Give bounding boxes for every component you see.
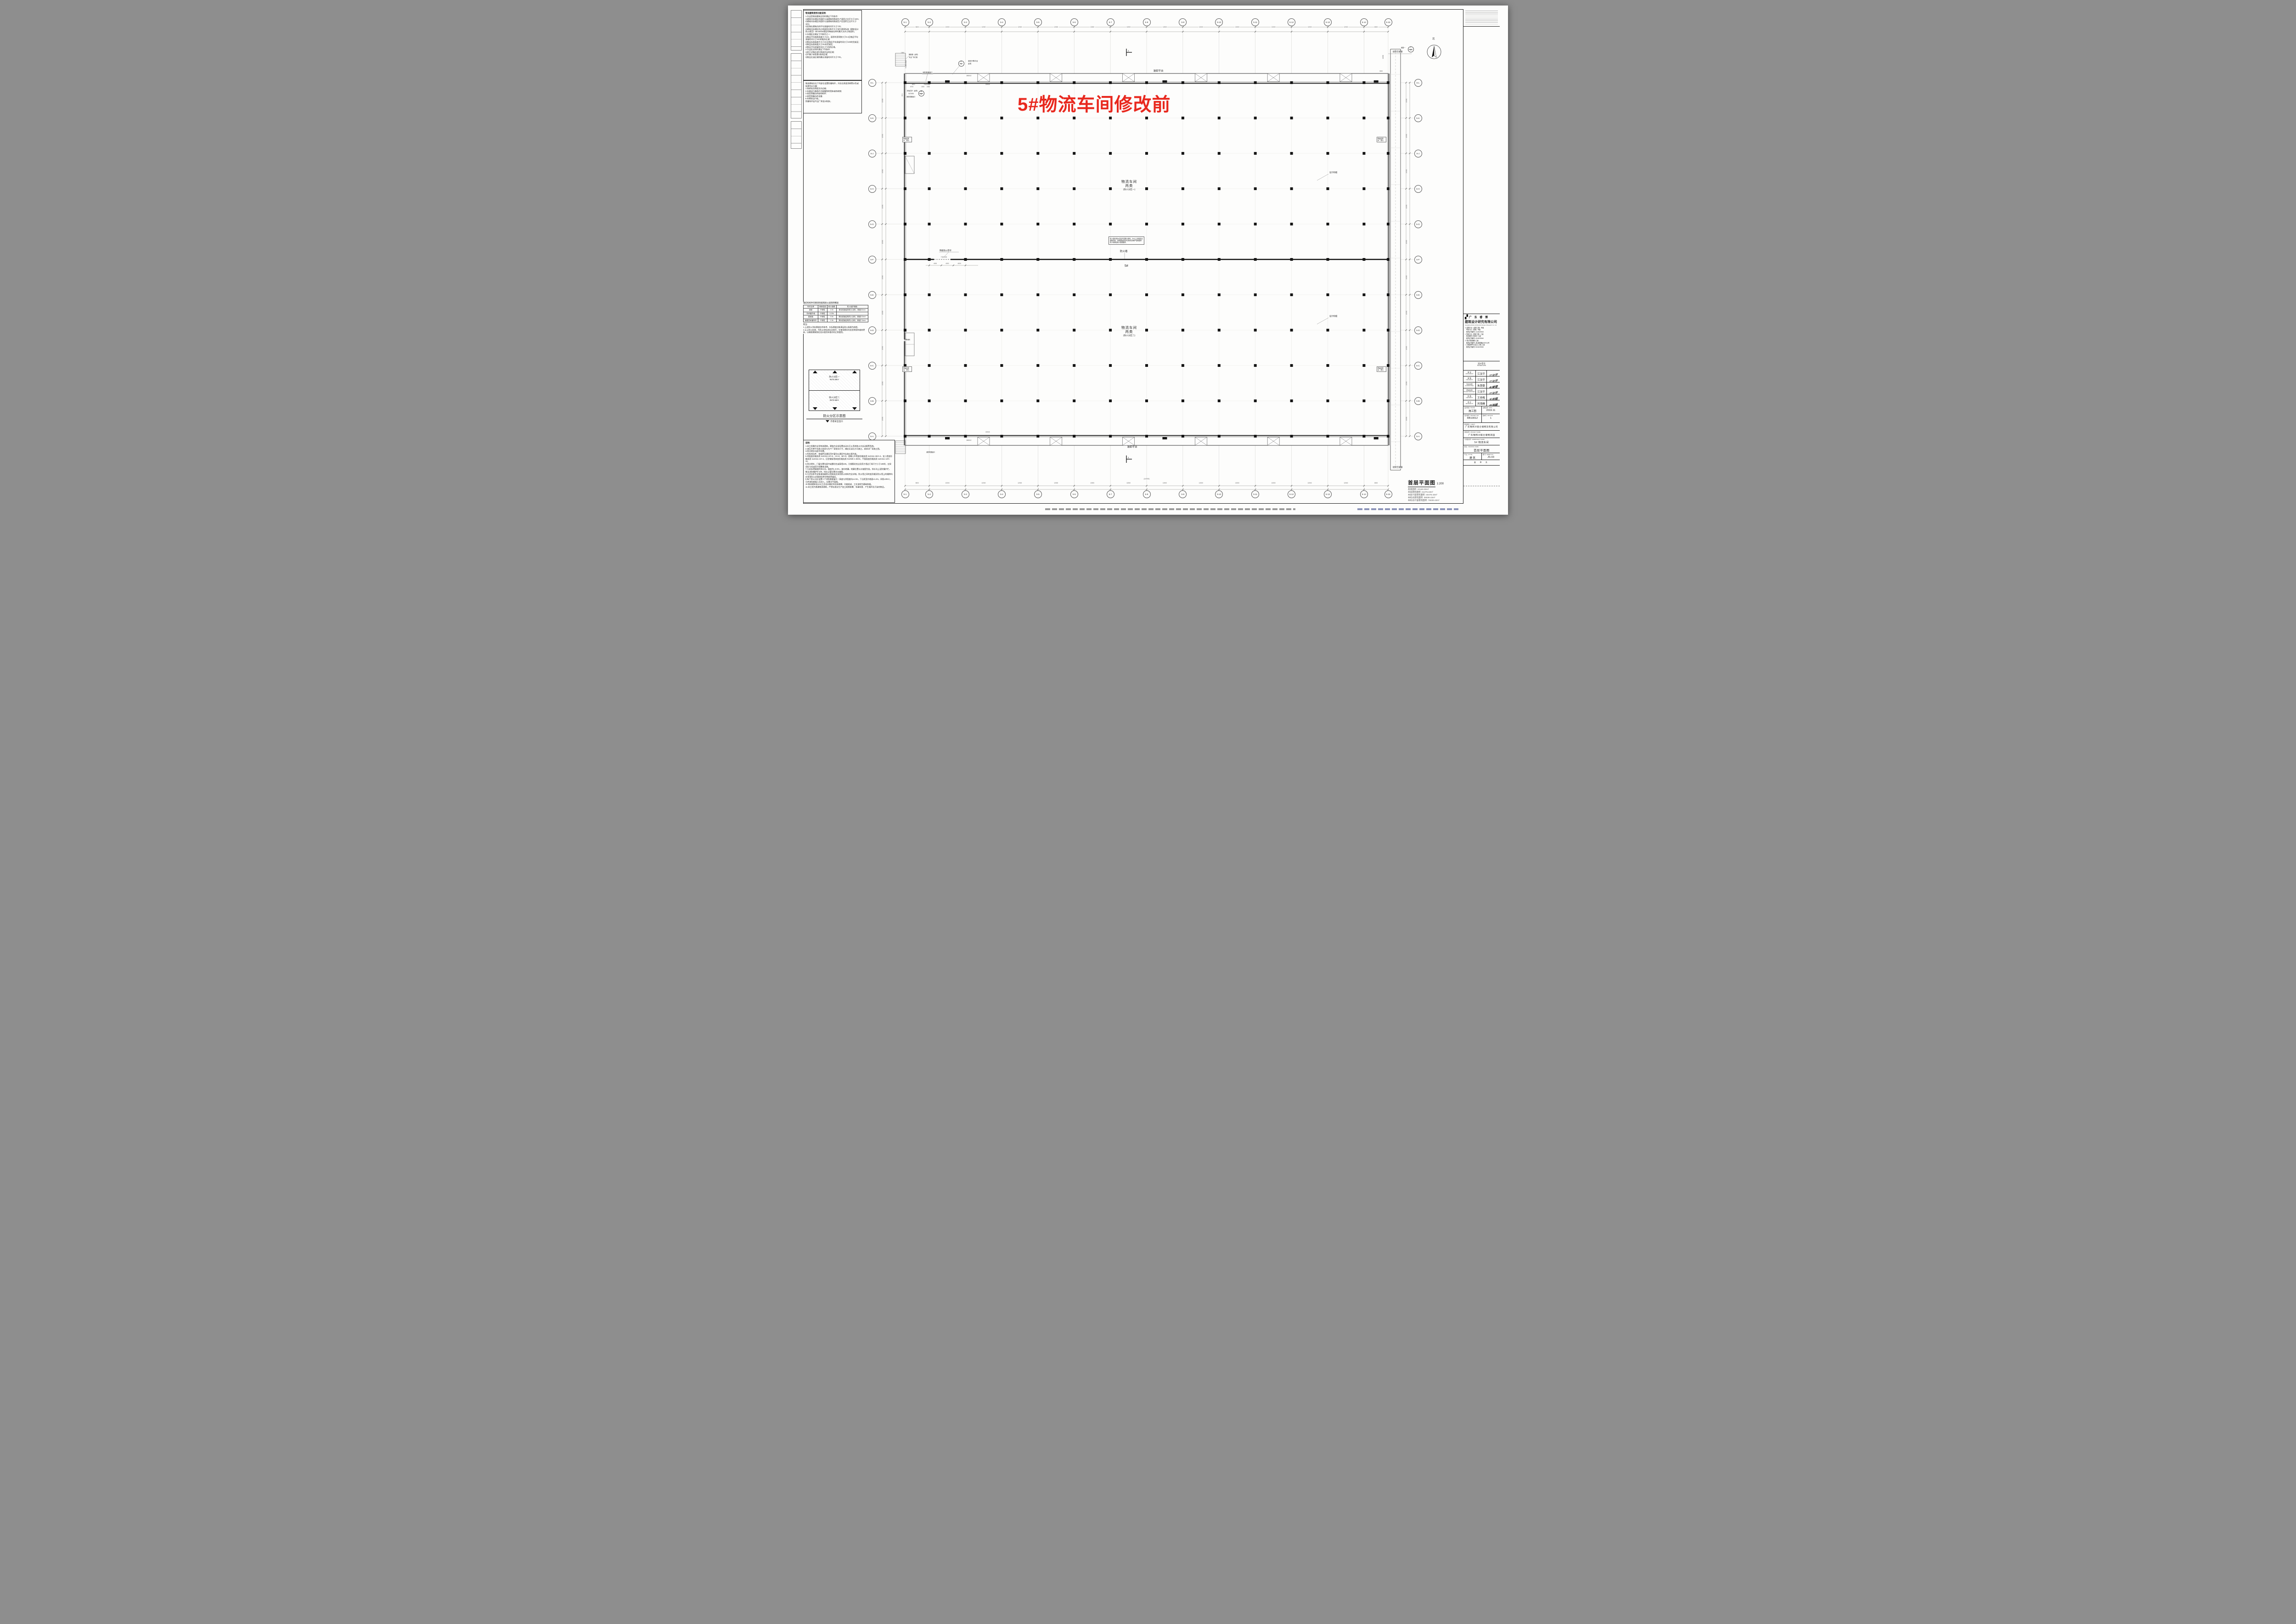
plan-scale: 1:200 (1437, 483, 1444, 485)
fire-table-row: 钢屋顶承重构件不燃性1.5h薄涂型钢结构防火涂料，厚度7.0mm (804, 319, 868, 322)
note-line: 9.每个防火分区设置二个消防救援窗口（高度与净宽度均≥1.0m，下沿距室内地面≤… (805, 478, 893, 483)
project-name: 广东锦邦冷链仓储物流园 (1464, 433, 1499, 437)
exit-arrow-icon (813, 407, 817, 410)
note-line: 2)建筑内存储区的容积与该建筑的物流生产区容积之比不大于15%; (805, 20, 860, 25)
fire-table-cell: 厚涂型钢结构防火涂料，厚度30mm (836, 309, 868, 312)
fire-table-note: 2.以上防火处理，为防止材料老化及损坏，在使用期间内应经常保持维修更新，以确保建… (803, 329, 868, 334)
fire-table-cell: 不燃性 (818, 309, 827, 312)
fire-table-header: 耐火极限 (827, 305, 836, 309)
general-notes-title: 说明: (805, 442, 893, 444)
fire-zone-legend: 示意安全出口 (806, 420, 862, 423)
fire-table-title: 钢结构构件的燃烧性能和耐火极限明细表 (803, 302, 868, 304)
general-notes-panel: 说明: 1.本工程属作业型物流建筑。建筑内全部设置自动水灭火系统和火灾自动报警系… (803, 440, 895, 503)
fire-table-cell: 薄涂型钢结构防火涂料，厚度3.0mm (836, 315, 868, 319)
fire-table-note: 1.上述防火涂料厚度仅供参考，实际厚度应能满足耐火极限为前提。 (803, 326, 868, 329)
drawing-sheet: 5-15-15-25-25-35-35-45-45-55-55-65-65-75… (788, 6, 1508, 515)
fire-table-cell: 非承重外墙 (804, 312, 818, 315)
signature-row: 项目负责PROJECT ARCHITECT江汝平江汝平 (1463, 388, 1500, 394)
company-logo-icon: ▞ (1465, 315, 1468, 319)
projno-edition-row: 设计编号PROJECT NO. RB19012 版本号EDITION 1 (1463, 414, 1500, 423)
note-line: 5.地面变形缝选用 11ZJ111 2/A-8、A/A-8、B/A-8，混凝土外… (805, 455, 893, 463)
fire-zone-diagram: 防火分区一 9575.58m² 防火分区二 9575.58m² 防火分区示意图 … (806, 370, 862, 423)
modification-overlay: 5#物流车间修改前 (1018, 90, 1171, 116)
fire-table-header: 构件名称 (804, 305, 818, 309)
signature-header: 设计签字 SIGNATURE (1463, 361, 1500, 371)
drawing-name: 首层平面图 (1464, 448, 1499, 452)
fire-table-row: 非承重外墙不燃性0.25h (804, 312, 868, 315)
project-no: RB19012 (1464, 417, 1480, 420)
fire-rating-table: 构件名称燃烧性能耐火极限防火保护措施钢梁不燃性2.0h厚涂型钢结构防火涂料，厚度… (803, 305, 868, 322)
note-line: 6.除注明外，门窗位置均居中或靠砼柱或离墙100。凡钢筋砼柱边及剪力墙边门垛尺寸… (805, 463, 893, 468)
fire-table-row: 钢梁不燃性2.0h厚涂型钢结构防火涂料，厚度30mm (804, 309, 868, 312)
fire-zone2-area: 9575.58m² (809, 399, 860, 401)
stamp-area-label: 盖 章 处 (1463, 460, 1500, 466)
company-name-en: Guangdong Ruibo Architectural Design & R… (1465, 325, 1498, 326)
title-block-spacer (1463, 27, 1500, 314)
plan-title-block: 首层平面图1:200 基底面积: 20160.00m²本层建筑面积: 21279… (1408, 478, 1462, 502)
stamp-area (1463, 466, 1500, 504)
signature-rows: 审 定APPROVED BY江汝平江汝平审 核CHECKED BY江汝平江汝平专… (1463, 371, 1500, 406)
fire-table-cell: 不燃性 (818, 312, 827, 315)
note-line: 防撞构件由专业厂商设计制安。 (805, 100, 860, 103)
drawing-name-row: 图 名DRAWING NAME 首层平面图 (1463, 445, 1500, 453)
subproject-row: 子项目名称SUBPROJECT NAME 5# 物流车间 (1463, 438, 1500, 445)
project-row: 项目名称PROJECT NAME 广东锦邦冷链仓储物流园 (1463, 431, 1500, 438)
exit-arrow-icon (813, 371, 817, 373)
footer-info-text (1357, 508, 1458, 510)
fire-table-cell: 屋面板 (804, 315, 818, 319)
fire-rating-table-block: 钢结构构件的燃烧性能和耐火极限明细表 构件名称燃烧性能耐火极限防火保护措施钢梁不… (803, 302, 868, 334)
subproject-name: 5# 物流车间 (1464, 441, 1499, 444)
fire-table-cell: 钢梁 (804, 309, 818, 312)
discipline: 建 筑 (1464, 456, 1480, 460)
title-block-notice (1463, 9, 1500, 27)
style-sheetno-row: 专 业STYLE 建 筑 图 号SHEET NO. JS-03 (1463, 453, 1500, 460)
fire-table-cell (836, 312, 868, 315)
exit-arrow-icon (852, 371, 857, 373)
exit-arrow-icon (833, 371, 837, 373)
note-line: 3)物品在该区域的最长滞留时间不大于72h。 (805, 56, 860, 59)
exit-arrow-icon (833, 407, 837, 410)
exit-arrow-icon (852, 407, 857, 410)
date-value: 2019.11 (1483, 409, 1499, 412)
note-line: 7.凡未标明坡度的排水沟，坡度为i=0.5%，坡向地漏，地漏位置以水施图为准。排… (805, 468, 893, 473)
signature-row: 审 定APPROVED BY江汝平江汝平 (1463, 371, 1500, 376)
title-block: ▞ 广 东 睿 博 建筑设计研究有限公司 Guangdong Ruibo Arc… (1463, 9, 1500, 504)
qualification-list: ☑ 建筑行业（建筑工程）甲级 市政行业（道路）甲级 资质证书编号: A14402… (1465, 327, 1498, 348)
fire-table-cell: 薄涂型钢结构防火涂料，厚度7.0mm (836, 319, 868, 322)
company-name-cn2: 建筑设计研究有限公司 (1465, 320, 1498, 324)
sheet-number: JS-03 (1483, 456, 1499, 459)
company-block: ▞ 广 东 睿 博 建筑设计研究有限公司 Guangdong Ruibo Arc… (1463, 314, 1500, 361)
footer-address-text (1045, 508, 1295, 510)
fire-table-cell: 0.25h (827, 312, 836, 315)
fire-table-cell: 1.5h (827, 319, 836, 322)
client-row: 建设单位CLIENT 广东锦邦冷链仓储物流有限公司 (1463, 423, 1500, 431)
client-name: 广东锦邦冷链仓储物流有限公司 (1464, 426, 1499, 428)
signature-row: 专业负责DIVISION CHIEF朱慧雯朱慧雯 (1463, 382, 1500, 388)
note-line: 11.本工程为普通物流建筑，严禁存放及生产加工易燃易爆、有毒有害、产生噪声及污染… (805, 486, 893, 489)
note-line: 物流建筑应在下列部位设置防撞构件，并应在表面涂刷警示色或贴黄色反光膜: (805, 82, 860, 87)
floor-plan-linework (788, 6, 1508, 515)
fire-table-cell: 2.0h (827, 309, 836, 312)
signature-row: 审 核CHECKED BY江汝平江汝平 (1463, 376, 1500, 382)
note-line: 1)物品平均堆放高度大于1m、面积利用系数大于0.4且物品平均滞留时间大于24h… (805, 36, 860, 41)
fire-table-cell: 钢屋顶承重构件 (804, 319, 818, 322)
signature-row: 校 核CHECKED BY王杏梅王杏梅 (1463, 394, 1500, 400)
phase-date-row: 设计阶段PHASE 施工图 出图日期DATE 2019.11 (1463, 406, 1500, 414)
note-line: 8.凡涉及各专业管道穿越防火墙体处应采用防火材料完全封堵。防火墙之间的变形缝及防… (805, 473, 893, 478)
edition: 1 (1483, 417, 1499, 420)
fire-zone-diagram-title: 防火分区示意图 (806, 414, 862, 419)
note-line: 4)建筑内存储区的占地面积总和不大于现行国家标准《建筑设计防火规范》GB 500… (805, 28, 860, 33)
fire-zone-box: 防火分区一 9575.58m² 防火分区二 9575.58m² (809, 370, 860, 411)
signature-row: 设 计DESIGNED BY刘海峰刘海峰 (1463, 400, 1500, 406)
phase-value: 施工图 (1464, 409, 1480, 413)
qualification-item: 资质证书编号: B244028940 (1465, 346, 1498, 348)
exit-arrow-icon (826, 420, 829, 422)
fire-zone1-area: 9575.58m² (809, 378, 860, 381)
notes-usage-panel: 物流建筑使用功能说明: 1.作业型物流建筑应同时满足下列条件:1)建筑内存储区的… (803, 10, 862, 80)
area-stat: 本栋总计容建筑面积: 75039.43m² (1408, 499, 1462, 502)
notes-usage-title: 物流建筑使用功能说明: (805, 12, 860, 15)
fire-table-header: 燃烧性能 (818, 305, 827, 309)
company-name-cn: 广 东 睿 博 (1469, 315, 1489, 319)
fire-table-cell: 不燃性 (818, 315, 827, 319)
plan-title: 首层平面图 (1408, 479, 1435, 487)
fire-table-row: 屋面板不燃性0.5h薄涂型钢结构防火涂料，厚度3.0mm (804, 315, 868, 319)
notes-collision-panel: 物流建筑应在下列部位设置防撞构件，并应在表面涂刷警示色或贴黄色反光膜:1.装卸站… (803, 80, 862, 113)
fire-table-cell: 不燃性 (818, 319, 827, 322)
fire-table-header: 防火保护措施 (836, 305, 868, 309)
fire-table-cell: 0.5h (827, 315, 836, 319)
